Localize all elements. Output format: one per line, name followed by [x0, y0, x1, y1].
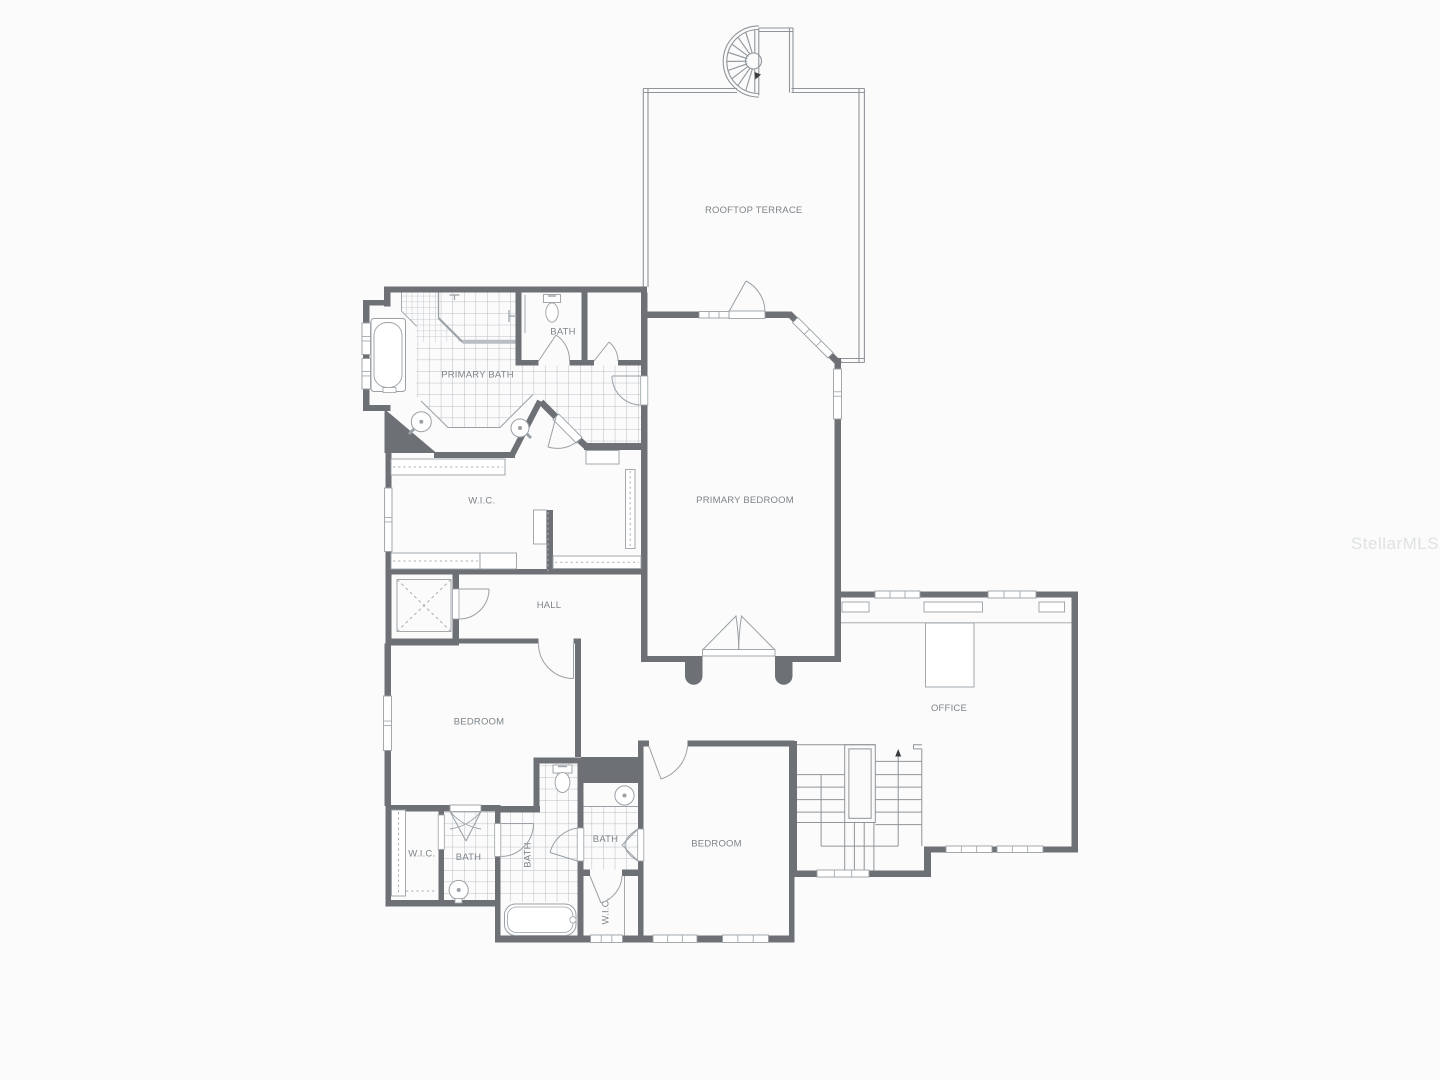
svg-text:PRIMARY BATH: PRIMARY BATH: [441, 370, 514, 381]
svg-text:W.I.C.: W.I.C.: [468, 496, 495, 507]
svg-text:StellarMLS: StellarMLS: [1351, 534, 1439, 553]
svg-text:BATH: BATH: [593, 834, 618, 845]
svg-text:BEDROOM: BEDROOM: [691, 839, 742, 850]
svg-text:ROOFTOP TERRACE: ROOFTOP TERRACE: [705, 205, 803, 216]
svg-text:PRIMARY BEDROOM: PRIMARY BEDROOM: [696, 495, 794, 506]
svg-text:W.I.C.: W.I.C.: [601, 897, 612, 924]
svg-text:BATH: BATH: [550, 327, 575, 338]
svg-text:BEDROOM: BEDROOM: [454, 717, 505, 728]
svg-text:HALL: HALL: [537, 600, 562, 611]
svg-text:OFFICE: OFFICE: [931, 703, 967, 714]
svg-text:BATH: BATH: [456, 852, 481, 863]
svg-text:W.I.C.: W.I.C.: [408, 849, 435, 860]
